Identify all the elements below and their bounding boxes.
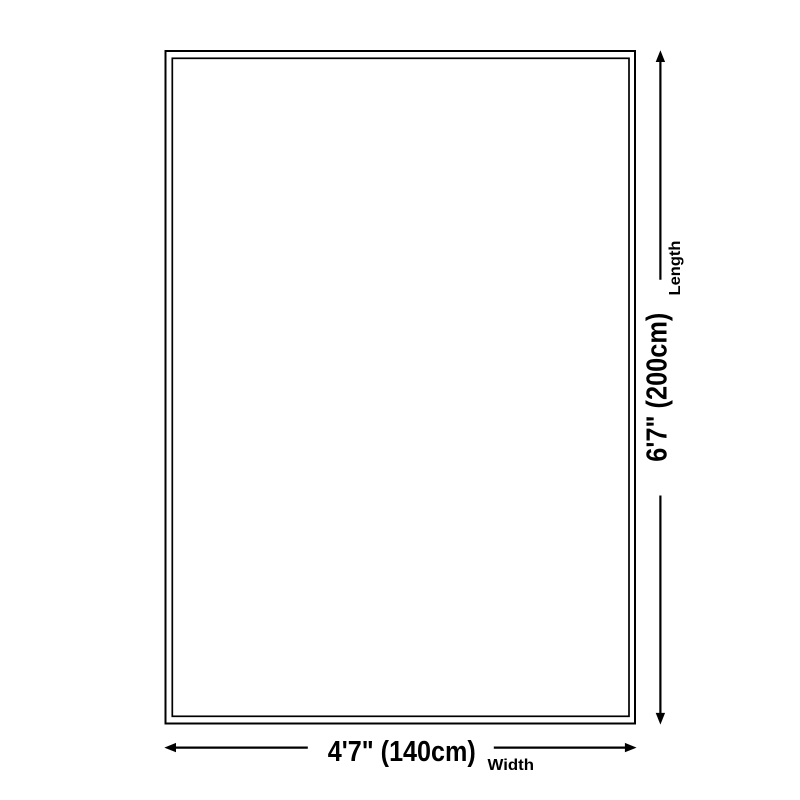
svg-text:Length: Length	[667, 241, 684, 296]
svg-text:6'7" (200cm): 6'7" (200cm)	[642, 313, 674, 462]
svg-text:4'7" (140cm): 4'7" (140cm)	[328, 736, 476, 768]
svg-text:Width: Width	[488, 757, 535, 774]
